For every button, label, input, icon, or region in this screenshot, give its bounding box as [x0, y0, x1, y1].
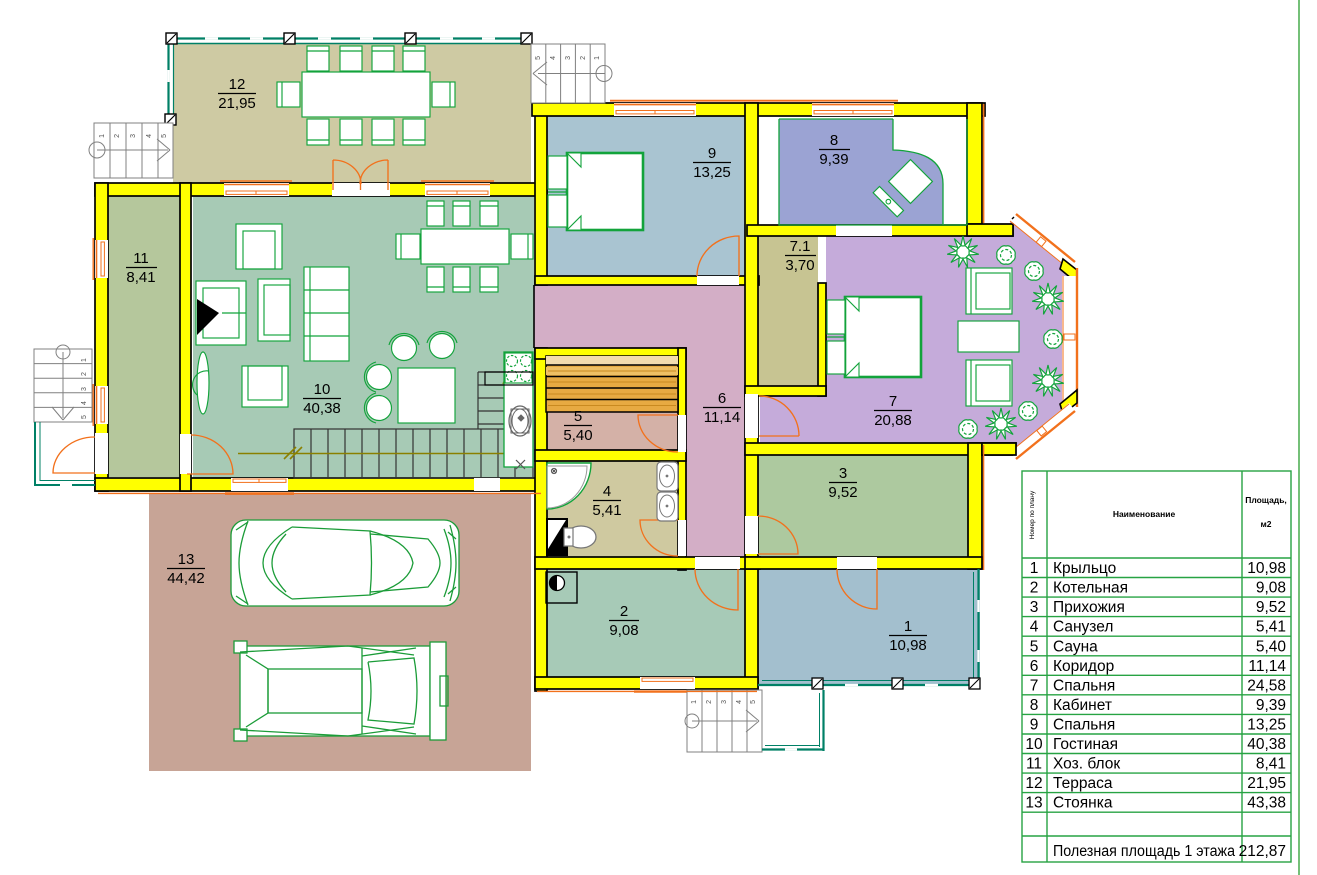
svg-text:9,52: 9,52 — [828, 484, 857, 501]
svg-text:Терраса: Терраса — [1053, 775, 1113, 792]
svg-text:7.1: 7.1 — [790, 238, 811, 255]
svg-text:1: 1 — [99, 134, 106, 138]
svg-text:13,25: 13,25 — [1247, 717, 1286, 734]
svg-text:Спальня: Спальня — [1053, 717, 1115, 734]
svg-text:4: 4 — [81, 401, 88, 405]
svg-text:5,40: 5,40 — [563, 427, 592, 444]
svg-text:6: 6 — [718, 390, 726, 407]
svg-text:Котельная: Котельная — [1053, 580, 1128, 597]
svg-text:1: 1 — [594, 56, 601, 60]
svg-text:11: 11 — [1026, 756, 1042, 773]
svg-text:Хоз. блок: Хоз. блок — [1053, 756, 1120, 773]
svg-text:8,41: 8,41 — [126, 269, 155, 286]
svg-text:5: 5 — [750, 700, 757, 704]
svg-text:9: 9 — [708, 145, 716, 162]
svg-text:43,38: 43,38 — [1247, 795, 1286, 812]
svg-text:Прихожия: Прихожия — [1053, 599, 1125, 616]
svg-text:Площадь,: Площадь, — [1245, 495, 1287, 505]
svg-text:9,39: 9,39 — [1256, 697, 1286, 714]
svg-text:10,98: 10,98 — [889, 637, 927, 654]
svg-text:Санузел: Санузел — [1053, 619, 1113, 636]
svg-text:2: 2 — [114, 134, 121, 138]
svg-text:3: 3 — [721, 700, 728, 704]
svg-text:11,14: 11,14 — [1248, 658, 1286, 675]
svg-text:3,70: 3,70 — [785, 257, 814, 274]
svg-text:Гостиная: Гостиная — [1053, 736, 1118, 753]
svg-text:13: 13 — [1025, 795, 1042, 812]
svg-text:5,41: 5,41 — [592, 502, 621, 519]
svg-text:40,38: 40,38 — [303, 400, 341, 417]
svg-text:4: 4 — [146, 134, 153, 138]
svg-text:4: 4 — [1030, 619, 1039, 636]
svg-text:Полезная площадь 1 этажа: Полезная площадь 1 этажа — [1053, 843, 1235, 860]
svg-text:40,38: 40,38 — [1247, 736, 1286, 753]
svg-text:5: 5 — [535, 56, 542, 60]
svg-text:8: 8 — [830, 132, 838, 149]
svg-text:21,95: 21,95 — [218, 95, 256, 112]
svg-text:Сауна: Сауна — [1053, 638, 1098, 655]
svg-text:12: 12 — [229, 76, 246, 93]
svg-text:12: 12 — [1025, 775, 1042, 792]
svg-text:3: 3 — [839, 465, 847, 482]
svg-text:7: 7 — [889, 393, 897, 410]
svg-text:Стоянка: Стоянка — [1053, 795, 1113, 812]
svg-text:Наименование: Наименование — [1113, 509, 1176, 519]
svg-text:10: 10 — [1025, 736, 1043, 753]
svg-text:Крыльцо: Крыльцо — [1053, 560, 1116, 577]
svg-text:1: 1 — [904, 618, 912, 635]
svg-text:5: 5 — [81, 415, 88, 419]
svg-text:13: 13 — [178, 551, 195, 568]
svg-text:5,41: 5,41 — [1256, 619, 1286, 636]
svg-text:4: 4 — [550, 56, 557, 60]
svg-text:8: 8 — [1030, 697, 1039, 714]
svg-text:6: 6 — [1030, 658, 1039, 675]
svg-text:Спальня: Спальня — [1053, 677, 1115, 694]
svg-text:4: 4 — [603, 483, 611, 500]
svg-text:3: 3 — [1030, 599, 1039, 616]
svg-text:9,08: 9,08 — [609, 622, 638, 639]
svg-text:1: 1 — [81, 358, 88, 362]
svg-text:21,95: 21,95 — [1247, 775, 1286, 792]
svg-text:1: 1 — [691, 700, 698, 704]
svg-text:3: 3 — [81, 387, 88, 391]
svg-text:11: 11 — [133, 250, 149, 267]
svg-text:9,52: 9,52 — [1256, 599, 1286, 616]
svg-text:2: 2 — [81, 372, 88, 376]
svg-text:20,88: 20,88 — [874, 412, 912, 429]
svg-text:44,42: 44,42 — [167, 570, 205, 587]
svg-text:13,25: 13,25 — [693, 164, 731, 181]
svg-text:5: 5 — [1030, 638, 1039, 655]
svg-text:9: 9 — [1030, 717, 1039, 734]
svg-text:9,39: 9,39 — [819, 151, 848, 168]
svg-text:м2: м2 — [1260, 519, 1271, 529]
svg-text:2: 2 — [580, 56, 587, 60]
svg-text:4: 4 — [736, 700, 743, 704]
svg-text:5,40: 5,40 — [1256, 638, 1287, 655]
svg-text:8,41: 8,41 — [1256, 756, 1286, 773]
svg-text:Номер по плану: Номер по плану — [1029, 490, 1036, 539]
svg-text:2: 2 — [620, 603, 628, 620]
svg-text:2: 2 — [1030, 580, 1039, 597]
svg-text:212,87: 212,87 — [1239, 843, 1286, 860]
svg-text:10,98: 10,98 — [1247, 560, 1286, 577]
svg-text:Коридор: Коридор — [1053, 658, 1114, 675]
svg-text:9,08: 9,08 — [1256, 580, 1286, 597]
svg-text:24,58: 24,58 — [1247, 677, 1286, 694]
svg-text:7: 7 — [1030, 677, 1039, 694]
svg-text:5: 5 — [574, 408, 582, 425]
svg-text:Кабинет: Кабинет — [1053, 697, 1112, 714]
svg-text:3: 3 — [565, 56, 572, 60]
svg-text:5: 5 — [161, 134, 168, 138]
svg-text:10: 10 — [314, 381, 331, 398]
svg-text:1: 1 — [1030, 560, 1039, 577]
svg-text:2: 2 — [706, 700, 713, 704]
svg-text:11,14: 11,14 — [704, 409, 740, 426]
svg-text:3: 3 — [130, 134, 137, 138]
